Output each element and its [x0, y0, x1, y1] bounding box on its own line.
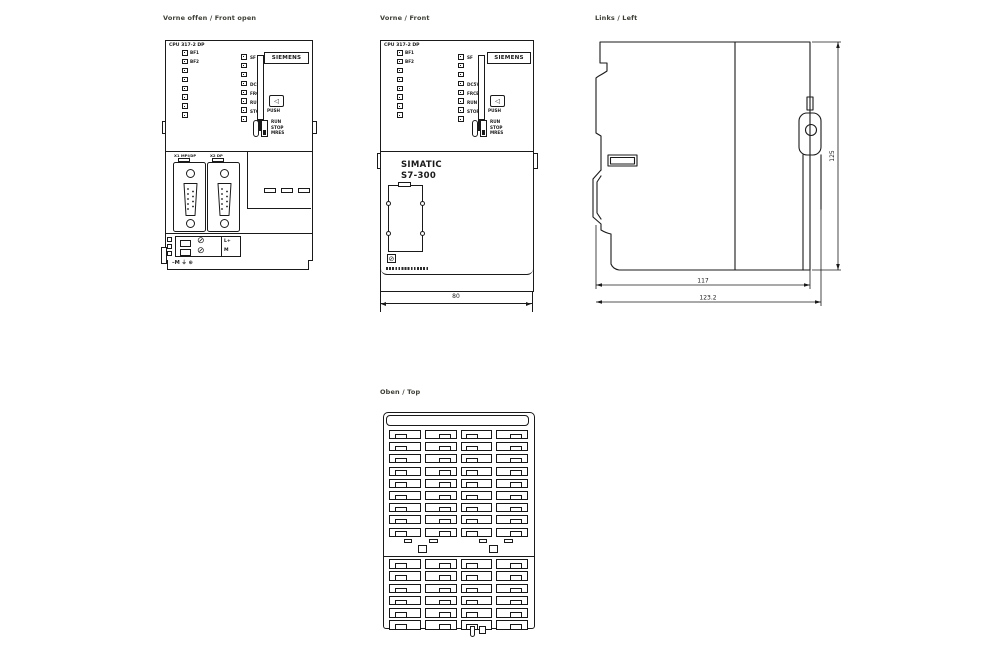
- mounting-tab-left: [377, 153, 382, 169]
- led-column-right: [241, 54, 247, 125]
- vent-slot: [389, 596, 421, 606]
- brand-nameplate-text: SIEMENS: [494, 55, 523, 61]
- led-indicator: [241, 81, 247, 87]
- front-open-module: CPU 317-2 DP BF1 BF2 SF DC5V FRCE RUN ST…: [165, 40, 313, 261]
- vent-slot: [496, 491, 528, 500]
- vent-slot: [389, 442, 421, 451]
- vent-slot: [461, 503, 493, 512]
- dim-arrow: [381, 302, 386, 306]
- led-column-left: [397, 50, 403, 121]
- brand-nameplate-text: SIEMENS: [272, 55, 301, 61]
- dim-arrow: [526, 302, 531, 306]
- bus-pin: [470, 626, 475, 637]
- ground-marking: –M ⏚ ⊕: [172, 261, 193, 267]
- housing-post: [418, 545, 427, 553]
- mode-switch-labels: RUN STOP MRES: [271, 119, 284, 136]
- mounting-tab-right: [533, 153, 538, 169]
- vent-slot: [389, 620, 421, 630]
- fastening-screw-box: ⊘: [387, 254, 396, 263]
- cpu-type-label: CPU 317-2 DP: [169, 43, 205, 48]
- vent-slot: [496, 620, 528, 630]
- section-divider: [384, 556, 534, 557]
- width-dimension: 80: [380, 292, 533, 312]
- mode-mres: MRES: [271, 130, 284, 136]
- vent-slot: [496, 479, 528, 488]
- led-indicator: [397, 50, 403, 56]
- led-indicator: [182, 112, 188, 118]
- mode-selector-switch[interactable]: [480, 120, 487, 137]
- panel-divider: [166, 151, 312, 152]
- mode-switch-labels: RUN STOP MRES: [490, 119, 503, 136]
- brand-nameplate: SIEMENS: [264, 52, 309, 64]
- bus-pin: [479, 626, 486, 634]
- dp-connector[interactable]: [207, 162, 240, 232]
- cutout-notch: [386, 201, 391, 206]
- led-indicator: [241, 90, 247, 96]
- vent-slot: [425, 596, 457, 606]
- led-indicator: [241, 63, 247, 69]
- led-label-sf: SF: [250, 55, 256, 60]
- vent-slot: [389, 571, 421, 581]
- led-indicator: [397, 68, 403, 74]
- vent-slot: [461, 528, 493, 537]
- led-indicator: [397, 59, 403, 65]
- vent-slot: [461, 608, 493, 618]
- housing-tab: [429, 539, 438, 543]
- led-indicator: [458, 90, 464, 96]
- vent-slot: [461, 584, 493, 594]
- vent-tab: [298, 188, 310, 193]
- led-label-bf1: BF1: [190, 50, 199, 55]
- vent-tab: [264, 188, 276, 193]
- dim-height-value: 125: [829, 150, 836, 162]
- led-indicator: [458, 107, 464, 113]
- vent-slot: [496, 596, 528, 606]
- mode-switch-knob: [263, 130, 267, 135]
- vent-slot: [461, 454, 493, 463]
- eject-arrow-icon: ◁: [274, 98, 279, 105]
- terminal-label-m: M: [224, 248, 229, 253]
- terminal-screw-icon[interactable]: ⊘: [197, 237, 205, 246]
- mounting-tab-right: [312, 121, 317, 134]
- led-indicator: [182, 103, 188, 109]
- front-door[interactable]: SIMATIC S7-300 ⊘: [381, 151, 533, 275]
- vent-slot: [425, 620, 457, 630]
- left-view-drawing: 117 123.2 125: [588, 33, 848, 323]
- led-label-sf: SF: [467, 55, 473, 60]
- vent-slot: [425, 584, 457, 594]
- power-terminal-block[interactable]: ⊘ ⊘ L+ M: [175, 236, 241, 257]
- vent-slot: [461, 559, 493, 569]
- vent-square: [167, 244, 172, 249]
- led-indicator: [397, 86, 403, 92]
- lower-vent-grid: [389, 559, 528, 630]
- vent-slot: [461, 620, 493, 630]
- led-indicator: [182, 50, 188, 56]
- housing-tab: [404, 539, 412, 543]
- led-column-right: [458, 54, 464, 125]
- terminal-label-lplus: L+: [224, 239, 231, 244]
- vent-slot: [389, 479, 421, 488]
- vent-slot: [425, 608, 457, 618]
- vent-slot: [425, 454, 457, 463]
- led-indicator: [241, 107, 247, 113]
- mode-switch-knob: [482, 130, 486, 135]
- vent-slot: [496, 442, 528, 451]
- cutout-notch: [420, 231, 425, 236]
- top-view-module: [383, 412, 535, 629]
- vent-slot: [425, 571, 457, 581]
- led-indicator: [182, 94, 188, 100]
- vent-slot: [496, 515, 528, 524]
- db9-connector-drawing: [174, 163, 207, 233]
- upper-vent-grid: [389, 430, 528, 537]
- vent-square: [167, 251, 172, 256]
- dim-width-value: 80: [452, 294, 460, 301]
- led-indicator: [241, 98, 247, 104]
- bay-step-line: [247, 151, 248, 208]
- front-edge-band: [386, 415, 529, 426]
- view-label-front-open: Vorne offen / Front open: [163, 14, 256, 22]
- led-indicator: [458, 54, 464, 60]
- led-label-bf1: BF1: [405, 50, 414, 55]
- vent-slot: [389, 454, 421, 463]
- mode-mres: MRES: [490, 130, 503, 136]
- cutout-notch: [386, 231, 391, 236]
- dimension-line: [381, 303, 532, 304]
- vent-slot: [461, 467, 493, 476]
- vent-slot: [389, 584, 421, 594]
- vent-slot: [496, 430, 528, 439]
- mpi-dp-connector[interactable]: [173, 162, 206, 232]
- db9-connector-drawing: [208, 163, 241, 233]
- vent-slot: [496, 528, 528, 537]
- vent-slot: [425, 515, 457, 524]
- front-module: CPU 317-2 DP BF1 BF2 SF DC5V FRCE RUN ST…: [380, 40, 534, 292]
- card-door-cutout[interactable]: [388, 185, 423, 252]
- housing-tab: [479, 539, 487, 543]
- toggle-grip: [253, 120, 259, 137]
- led-indicator: [458, 81, 464, 87]
- bay-step-line: [247, 208, 311, 209]
- led-label-run: RUN: [467, 100, 477, 105]
- housing-post: [489, 545, 498, 553]
- vent-slot: [461, 442, 493, 451]
- dim-depth-total-value: 123.2: [699, 295, 716, 302]
- extension-line: [532, 292, 533, 312]
- vent-slot: [425, 528, 457, 537]
- card-eject-button[interactable]: ◁: [269, 95, 284, 107]
- brand-nameplate: SIEMENS: [487, 52, 531, 64]
- dim-depth-rail-value: 117: [697, 278, 709, 285]
- push-label: PUSH: [488, 109, 501, 114]
- terminal-opening: [180, 249, 191, 257]
- push-label: PUSH: [267, 109, 280, 114]
- led-label-bf2: BF2: [190, 59, 199, 64]
- vent-slot: [496, 608, 528, 618]
- vent-slot: [389, 559, 421, 569]
- led-indicator: [397, 103, 403, 109]
- terminal-opening: [180, 240, 191, 248]
- vent-slot: [461, 515, 493, 524]
- vent-slot: [389, 467, 421, 476]
- toggle-grip: [472, 120, 478, 137]
- led-indicator: [182, 86, 188, 92]
- vent-slot: [389, 491, 421, 500]
- led-indicator: [458, 116, 464, 122]
- module-bottom-lip: –M ⏚ ⊕: [167, 260, 309, 270]
- vent-slot: [461, 571, 493, 581]
- vent-slot: [496, 503, 528, 512]
- vent-slot: [389, 528, 421, 537]
- vent-slot: [496, 584, 528, 594]
- terminal-screw-icon[interactable]: ⊘: [197, 247, 205, 256]
- vent-slot: [425, 503, 457, 512]
- vent-slot: [496, 571, 528, 581]
- vent-slot: [389, 515, 421, 524]
- led-column-left: [182, 50, 188, 121]
- vent-slot: [461, 430, 493, 439]
- vent-slot: [425, 559, 457, 569]
- card-cutout-latch: [398, 182, 411, 187]
- view-label-front: Vorne / Front: [380, 14, 430, 22]
- vent-slot: [425, 442, 457, 451]
- vent-slot: [389, 608, 421, 618]
- screw-icon[interactable]: ⊘: [389, 256, 395, 263]
- vent-slot: [496, 454, 528, 463]
- housing-tab: [504, 539, 513, 543]
- vent-slot: [425, 430, 457, 439]
- cutout-notch: [420, 201, 425, 206]
- vent-slot: [425, 479, 457, 488]
- product-name: SIMATIC: [401, 161, 442, 170]
- vent-slot: [461, 479, 493, 488]
- led-indicator: [241, 116, 247, 122]
- led-indicator: [397, 77, 403, 83]
- page: Vorne offen / Front open Vorne / Front L…: [0, 0, 1000, 663]
- vent-slot: [461, 596, 493, 606]
- view-label-top: Oben / Top: [380, 388, 420, 396]
- vent-slot: [425, 491, 457, 500]
- cpu-type-label: CPU 317-2 DP: [384, 43, 420, 48]
- led-indicator: [182, 77, 188, 83]
- order-number-text: [386, 267, 429, 270]
- terminal-divider: [166, 233, 312, 234]
- eject-arrow-icon: ◁: [495, 98, 500, 105]
- vent-slot: [389, 503, 421, 512]
- product-series: S7-300: [401, 172, 436, 181]
- vent-tab: [281, 188, 293, 193]
- vent-slot: [389, 430, 421, 439]
- vent-slot: [425, 467, 457, 476]
- led-indicator: [397, 112, 403, 118]
- view-label-left: Links / Left: [595, 14, 637, 22]
- mounting-tab-left: [162, 121, 167, 134]
- card-eject-button[interactable]: ◁: [490, 95, 505, 107]
- vent-slot: [461, 491, 493, 500]
- vent-slot: [496, 467, 528, 476]
- led-label-bf2: BF2: [405, 59, 414, 64]
- vent-square: [167, 237, 172, 242]
- led-indicator: [397, 94, 403, 100]
- terminal-separator: [221, 237, 222, 256]
- led-indicator: [241, 54, 247, 60]
- vent-slot: [496, 559, 528, 569]
- led-indicator: [182, 59, 188, 65]
- led-indicator: [241, 72, 247, 78]
- mode-selector-switch[interactable]: [261, 120, 268, 137]
- led-indicator: [458, 98, 464, 104]
- led-indicator: [182, 68, 188, 74]
- led-indicator: [458, 72, 464, 78]
- led-indicator: [458, 63, 464, 69]
